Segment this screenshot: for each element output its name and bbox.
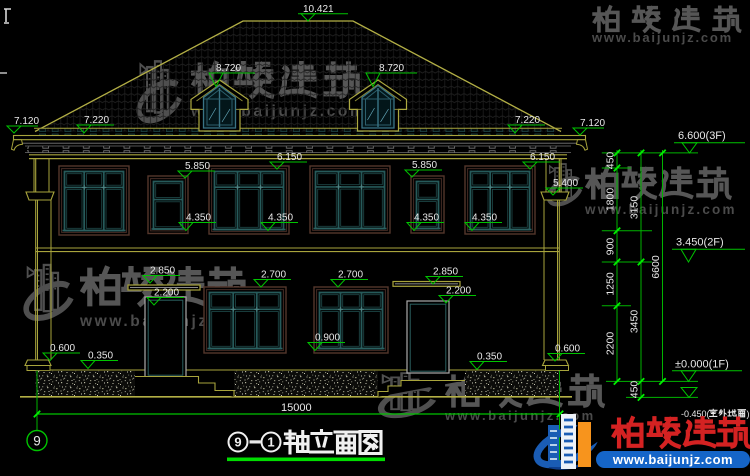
svg-text:2.850: 2.850 bbox=[150, 266, 175, 277]
svg-text:7.120: 7.120 bbox=[14, 116, 39, 127]
svg-text:4.350: 4.350 bbox=[268, 213, 293, 224]
svg-text:450: 450 bbox=[605, 152, 617, 170]
svg-text:5.400: 5.400 bbox=[553, 178, 578, 189]
svg-text:3150: 3150 bbox=[629, 196, 641, 220]
svg-text:2.200: 2.200 bbox=[446, 286, 471, 297]
svg-text:8.720: 8.720 bbox=[379, 63, 404, 74]
svg-text:4.350: 4.350 bbox=[414, 213, 439, 224]
svg-text:2200: 2200 bbox=[605, 332, 617, 356]
svg-text:5.850: 5.850 bbox=[185, 161, 210, 172]
svg-text:7.220: 7.220 bbox=[515, 115, 540, 126]
svg-text:6.150: 6.150 bbox=[530, 152, 555, 163]
svg-text:2.850: 2.850 bbox=[433, 267, 458, 278]
svg-text:0.600: 0.600 bbox=[50, 343, 75, 354]
svg-text:5.850: 5.850 bbox=[412, 160, 437, 171]
svg-text:0.350: 0.350 bbox=[477, 352, 502, 363]
svg-text:9: 9 bbox=[33, 434, 41, 449]
svg-text:1800: 1800 bbox=[605, 188, 617, 212]
svg-text:3450: 3450 bbox=[629, 310, 641, 334]
svg-text:1: 1 bbox=[267, 435, 274, 450]
svg-text:7.120: 7.120 bbox=[580, 118, 605, 129]
svg-text:www.baijunjz.com: www.baijunjz.com bbox=[612, 452, 733, 467]
svg-text:9: 9 bbox=[234, 435, 241, 450]
svg-text:): ) bbox=[747, 409, 750, 419]
svg-text:15000: 15000 bbox=[281, 402, 312, 414]
svg-text:0.900: 0.900 bbox=[315, 333, 340, 344]
svg-text:6.600(3F): 6.600(3F) bbox=[678, 130, 726, 142]
svg-text:0.350: 0.350 bbox=[88, 351, 113, 362]
svg-text:4.350: 4.350 bbox=[186, 213, 211, 224]
svg-text:0.600: 0.600 bbox=[555, 344, 580, 355]
svg-text:6600: 6600 bbox=[650, 255, 662, 279]
svg-text:6.150: 6.150 bbox=[277, 152, 302, 163]
svg-text:2.700: 2.700 bbox=[338, 270, 363, 281]
svg-text:±0.000(1F): ±0.000(1F) bbox=[675, 359, 729, 371]
svg-text:-0.450(: -0.450( bbox=[681, 409, 710, 419]
svg-text:900: 900 bbox=[605, 238, 617, 256]
svg-text:4.350: 4.350 bbox=[472, 213, 497, 224]
svg-text:1250: 1250 bbox=[605, 272, 617, 296]
svg-text:3.450(2F): 3.450(2F) bbox=[676, 237, 724, 249]
svg-text:8.720: 8.720 bbox=[216, 63, 241, 74]
svg-text:www.baijunjz.com: www.baijunjz.com bbox=[591, 30, 733, 45]
svg-text:2.200: 2.200 bbox=[154, 288, 179, 299]
svg-text:7.220: 7.220 bbox=[84, 115, 109, 126]
svg-text:2.700: 2.700 bbox=[261, 270, 286, 281]
svg-text:450: 450 bbox=[629, 381, 641, 399]
